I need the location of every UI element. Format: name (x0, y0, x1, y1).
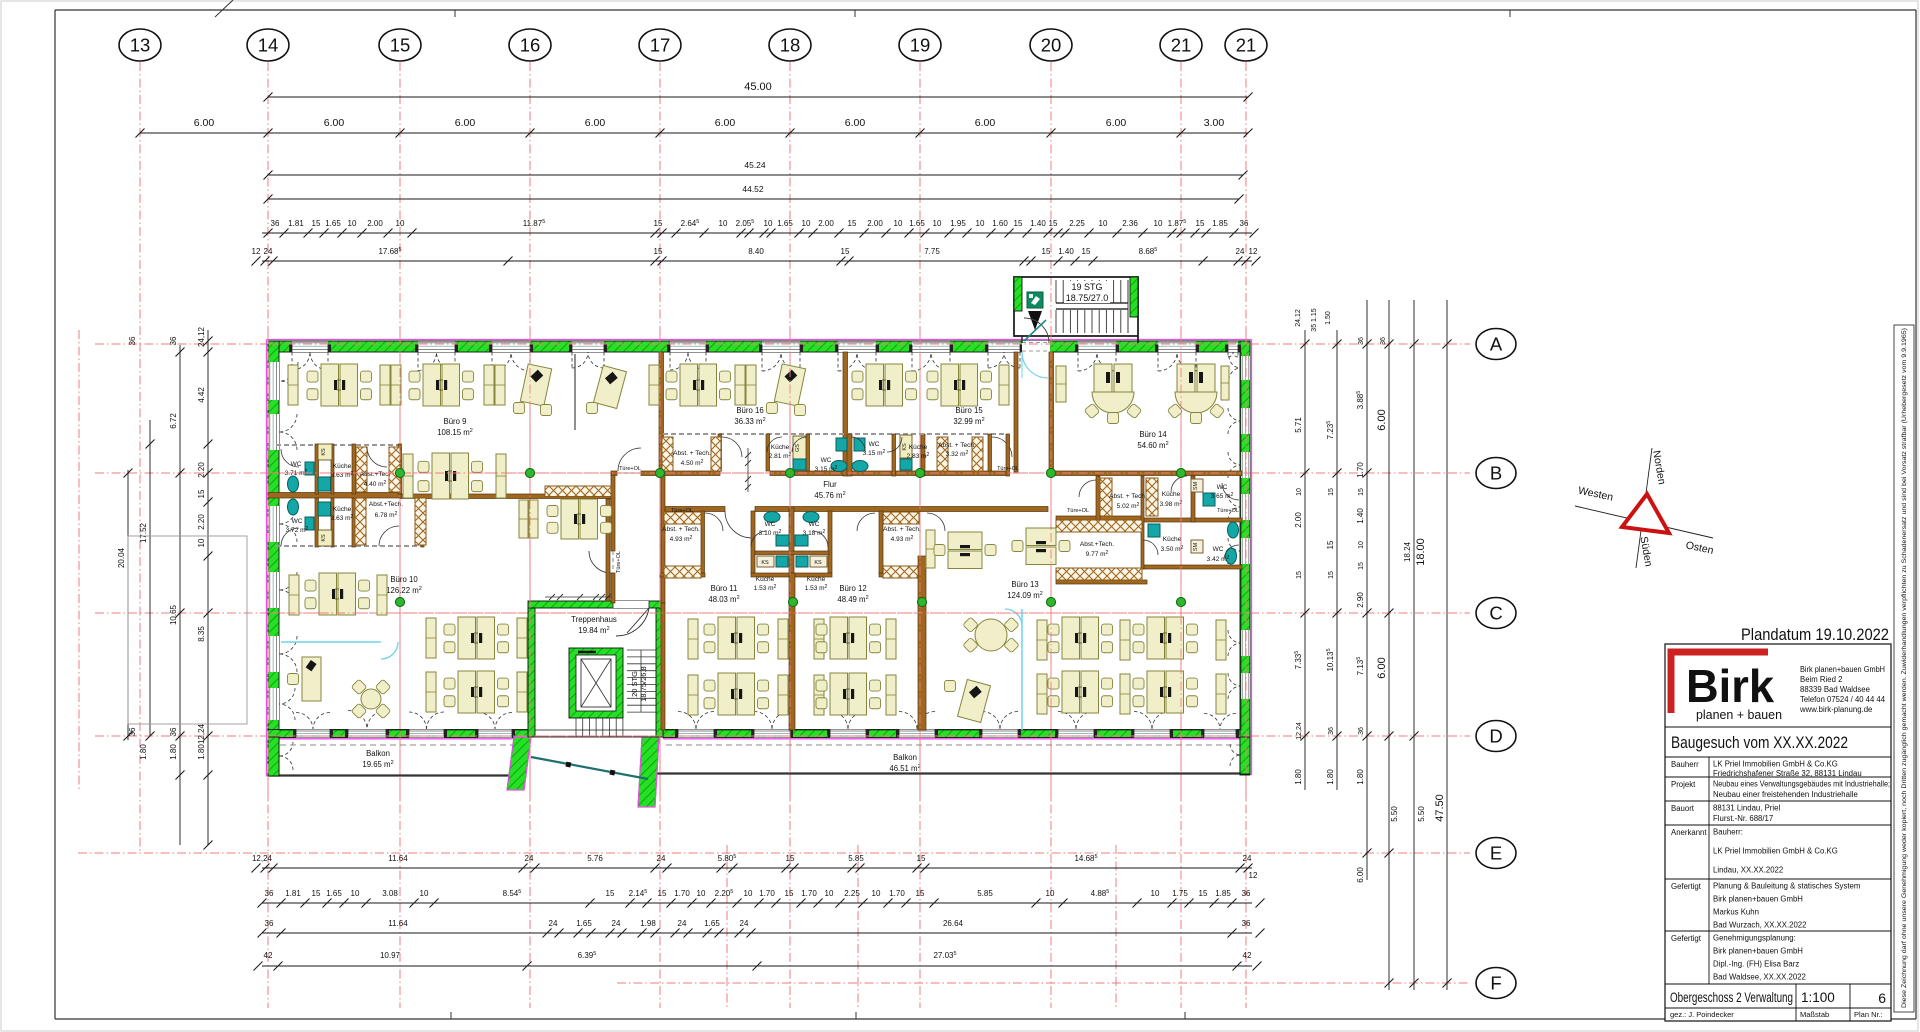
svg-text:KS: KS (761, 560, 769, 566)
svg-text:Neubau eines Verwaltungsgebäud: Neubau eines Verwaltungsgebäudes mit Ind… (1713, 780, 1890, 789)
svg-text:10: 10 (894, 219, 903, 228)
svg-text:15: 15 (1042, 247, 1051, 256)
svg-text:5.85: 5.85 (977, 889, 993, 898)
svg-text:26.64: 26.64 (943, 919, 964, 928)
svg-text:20: 20 (1041, 35, 1062, 56)
svg-text:5.71: 5.71 (1294, 417, 1303, 433)
svg-text:15: 15 (658, 889, 667, 898)
svg-text:10: 10 (420, 889, 429, 898)
svg-text:Planung & Bauleitung & statisc: Planung & Bauleitung & statisches System (1713, 882, 1860, 891)
svg-text:3.18 m2: 3.18 m2 (803, 529, 826, 537)
svg-text:3.50 m2: 3.50 m2 (1161, 545, 1184, 553)
svg-text:gez.: J. Poindecker: gez.: J. Poindecker (1670, 1010, 1734, 1019)
svg-text:3.00: 3.00 (1204, 117, 1225, 129)
svg-text:E: E (1490, 843, 1502, 864)
svg-text:Maßstab: Maßstab (1800, 1010, 1829, 1019)
svg-text:planen + bauen: planen + bauen (1696, 708, 1782, 722)
svg-text:Abst. + Tech.: Abst. + Tech. (673, 450, 711, 457)
svg-text:6.78 m2: 6.78 m2 (375, 511, 398, 519)
svg-text:18.75/26.8: 18.75/26.8 (639, 666, 648, 701)
svg-text:20.04: 20.04 (117, 547, 126, 568)
svg-text:15: 15 (654, 247, 663, 256)
svg-text:Büro 12: Büro 12 (839, 584, 866, 593)
svg-text:LK Priel Immobilien GmbH & Co.: LK Priel Immobilien GmbH & Co.KG (1713, 760, 1838, 769)
svg-text:48.03 m2: 48.03 m2 (708, 595, 739, 604)
svg-text:16: 16 (520, 35, 541, 56)
svg-text:1.80: 1.80 (1326, 769, 1335, 785)
svg-text:88339 Bad Waldsee: 88339 Bad Waldsee (1800, 685, 1870, 694)
svg-text:1.53 m2: 1.53 m2 (805, 584, 828, 592)
svg-text:45.00: 45.00 (744, 81, 772, 93)
svg-text:Abst.+Tech.: Abst.+Tech. (369, 501, 403, 508)
svg-text:1.70: 1.70 (801, 889, 817, 898)
svg-text:Dipl.-Ing. (FH) Elisa Barz: Dipl.-Ing. (FH) Elisa Barz (1713, 960, 1799, 969)
svg-text:14: 14 (258, 35, 279, 56)
svg-text:WC: WC (292, 518, 303, 525)
svg-text:Bauherr: Bauherr (1671, 760, 1699, 769)
svg-text:Friedrichshafener Straße 32, 8: Friedrichshafener Straße 32, 88131 Linda… (1713, 769, 1862, 778)
svg-text:1.85: 1.85 (1215, 889, 1231, 898)
svg-text:Küche: Küche (1162, 491, 1181, 498)
svg-text:17: 17 (650, 35, 671, 56)
svg-text:4.40 m2: 4.40 m2 (364, 480, 387, 488)
svg-text:B: B (1490, 463, 1502, 484)
svg-text:10.135: 10.135 (1326, 648, 1335, 671)
svg-text:Birk planen+bauen GmbH: Birk planen+bauen GmbH (1800, 665, 1885, 674)
svg-text:2.20: 2.20 (197, 462, 206, 478)
svg-text:24: 24 (678, 919, 687, 928)
svg-text:Küche: Küche (756, 576, 775, 583)
svg-text:Birk planen+bauen GmbH: Birk planen+bauen GmbH (1713, 895, 1803, 904)
svg-text:8.35: 8.35 (197, 626, 206, 642)
svg-text:10.65: 10.65 (169, 604, 178, 625)
svg-text:35 1.15: 35 1.15 (1311, 308, 1318, 331)
svg-text:Büro 11: Büro 11 (711, 584, 738, 593)
svg-text:Bad Wurzach, XX.XX.2022: Bad Wurzach, XX.XX.2022 (1713, 921, 1806, 930)
svg-text:Büro 13: Büro 13 (1011, 580, 1038, 589)
svg-text:10: 10 (197, 538, 206, 547)
svg-text:F: F (1490, 973, 1501, 994)
svg-text:10: 10 (976, 219, 985, 228)
svg-text:Abst. + Tech.: Abst. + Tech. (883, 526, 921, 533)
svg-text:1.95: 1.95 (950, 219, 966, 228)
svg-text:1.53 m2: 1.53 m2 (754, 584, 777, 592)
svg-text:15: 15 (916, 889, 925, 898)
svg-text:SM: SM (1193, 542, 1199, 551)
svg-text:Küche: Küche (807, 576, 826, 583)
svg-text:10: 10 (719, 219, 728, 228)
svg-text:1.50: 1.50 (1325, 311, 1332, 325)
svg-text:36: 36 (1328, 727, 1335, 735)
svg-text:12,24: 12,24 (197, 723, 206, 744)
svg-text:GS: GS (795, 444, 801, 452)
svg-text:6.00: 6.00 (585, 117, 606, 129)
svg-text:11.875: 11.875 (523, 219, 546, 228)
svg-text:1.65: 1.65 (704, 919, 720, 928)
svg-text:15: 15 (1296, 571, 1303, 579)
svg-text:Balkon: Balkon (366, 749, 390, 758)
svg-text:Projekt: Projekt (1671, 780, 1696, 789)
svg-text:19.84 m2: 19.84 m2 (578, 626, 609, 635)
svg-text:Büro 15: Büro 15 (955, 406, 983, 415)
svg-text:WC: WC (869, 441, 880, 448)
svg-text:1.40: 1.40 (1030, 219, 1046, 228)
svg-text:15: 15 (654, 219, 663, 228)
svg-text:Türe+OL: Türe+OL (1067, 508, 1089, 514)
svg-text:126.22 m2: 126.22 m2 (386, 586, 422, 595)
svg-text:9.77 m2: 9.77 m2 (1086, 550, 1109, 558)
svg-text:Flur: Flur (823, 480, 837, 489)
svg-text:1.80: 1.80 (139, 744, 148, 760)
svg-text:4.42: 4.42 (197, 387, 206, 403)
svg-text:KS: KS (321, 448, 327, 456)
svg-text:42: 42 (264, 951, 273, 960)
svg-text:Büro 14: Büro 14 (1139, 430, 1167, 439)
svg-text:Abst. + Tech.: Abst. + Tech. (662, 526, 700, 533)
svg-text:Abst.+Tech.: Abst.+Tech. (1080, 541, 1114, 548)
svg-text:15: 15 (1358, 562, 1365, 570)
svg-text:1.81: 1.81 (288, 219, 304, 228)
svg-text:11.64: 11.64 (388, 854, 408, 863)
svg-text:KS: KS (321, 534, 327, 542)
svg-text:15: 15 (1049, 219, 1058, 228)
svg-text:1.85: 1.85 (1212, 219, 1228, 228)
svg-text:Plan Nr.:: Plan Nr.: (1854, 1010, 1883, 1019)
svg-text:10: 10 (348, 219, 357, 228)
svg-text:54.60 m2: 54.60 m2 (1137, 441, 1168, 450)
svg-text:24: 24 (1243, 854, 1252, 863)
svg-text:Anerkannt: Anerkannt (1671, 828, 1707, 837)
svg-text:3.32 m2: 3.32 m2 (946, 450, 969, 458)
svg-text:6.00: 6.00 (455, 117, 476, 129)
svg-text:36: 36 (169, 336, 178, 345)
svg-text:2.90: 2.90 (1356, 592, 1365, 608)
svg-text:1.40: 1.40 (1058, 247, 1074, 256)
svg-text:Birk planen+bauen GmbH: Birk planen+bauen GmbH (1713, 947, 1803, 956)
svg-text:www.birk-planung.de: www.birk-planung.de (1799, 705, 1872, 714)
svg-text:Neubau einer freistehenden Ind: Neubau einer freistehenden Industriehall… (1713, 790, 1858, 799)
svg-text:Abst. + Tech.: Abst. + Tech. (938, 442, 976, 449)
svg-text:15: 15 (390, 35, 411, 56)
svg-text:LK Priel Immobilien GmbH & Co.: LK Priel Immobilien GmbH & Co.KG (1713, 847, 1838, 856)
svg-text:6.00: 6.00 (1356, 867, 1365, 883)
svg-text:4.50 m2: 4.50 m2 (681, 459, 704, 467)
svg-text:10: 10 (1099, 219, 1108, 228)
svg-text:36: 36 (1242, 919, 1251, 928)
svg-text:Küche: Küche (1163, 536, 1182, 543)
svg-text:WC: WC (765, 521, 776, 528)
svg-text:3.63 m2: 3.63 m2 (331, 471, 354, 479)
svg-text:10: 10 (802, 219, 811, 228)
svg-text:10: 10 (933, 219, 942, 228)
svg-text:10: 10 (1296, 488, 1303, 496)
svg-text:C: C (1489, 603, 1502, 624)
svg-text:Markus Kuhn: Markus Kuhn (1713, 908, 1759, 917)
svg-text:5.02 m2: 5.02 m2 (1117, 502, 1140, 510)
svg-text:10: 10 (396, 219, 405, 228)
svg-text:3.63 m2: 3.63 m2 (331, 514, 354, 522)
svg-text:17.685: 17.685 (378, 247, 401, 256)
svg-text:44.52: 44.52 (742, 184, 764, 194)
svg-text:KS: KS (814, 560, 822, 566)
svg-text:6.72: 6.72 (169, 413, 178, 429)
svg-text:10: 10 (1046, 889, 1055, 898)
svg-text:Diese Zeichnung darf ohne unse: Diese Zeichnung darf ohne unsere Genehmi… (1901, 328, 1908, 1008)
svg-text:7.75: 7.75 (924, 247, 940, 256)
svg-text:Türe+OL: Türe+OL (671, 508, 693, 514)
svg-text:15: 15 (312, 889, 321, 898)
svg-text:2.36: 2.36 (1122, 219, 1138, 228)
svg-text:Baugesuch vom XX.XX.2022: Baugesuch vom XX.XX.2022 (1671, 734, 1848, 752)
svg-text:36: 36 (1380, 337, 1387, 345)
svg-text:1.80: 1.80 (1356, 769, 1365, 785)
svg-text:24: 24 (549, 919, 558, 928)
svg-text:19.65 m2: 19.65 m2 (362, 760, 393, 769)
svg-text:36.33 m2: 36.33 m2 (734, 417, 765, 426)
svg-text:36: 36 (265, 919, 274, 928)
svg-text:24,12: 24,12 (1295, 309, 1302, 327)
svg-text:10: 10 (351, 889, 360, 898)
svg-text:45.24: 45.24 (744, 160, 766, 170)
svg-text:6.00: 6.00 (1376, 657, 1388, 678)
svg-text:1.65: 1.65 (576, 919, 592, 928)
svg-text:36: 36 (169, 727, 178, 736)
svg-text:3.08: 3.08 (382, 889, 398, 898)
svg-text:6.00: 6.00 (194, 117, 215, 129)
svg-text:5.85: 5.85 (848, 854, 864, 863)
svg-text:15: 15 (1328, 571, 1335, 579)
svg-text:Büro 16: Büro 16 (736, 406, 763, 415)
svg-text:24: 24 (657, 854, 666, 863)
svg-text:36: 36 (265, 889, 274, 898)
svg-text:Türe+OL: Türe+OL (619, 466, 641, 472)
svg-text:21: 21 (1236, 35, 1257, 56)
svg-text:2.81 m2: 2.81 m2 (769, 452, 792, 460)
svg-text:36: 36 (128, 336, 137, 345)
svg-text:3.65 m2: 3.65 m2 (1211, 492, 1234, 500)
svg-text:2.20: 2.20 (197, 514, 206, 530)
svg-text:24: 24 (264, 247, 273, 256)
svg-text:Balkon: Balkon (893, 753, 917, 762)
svg-text:2.00: 2.00 (867, 219, 883, 228)
svg-text:1.40: 1.40 (1356, 508, 1365, 524)
svg-text:46.51 m2: 46.51 m2 (889, 764, 920, 773)
svg-text:5.50: 5.50 (1390, 806, 1399, 822)
svg-text:1.70: 1.70 (1356, 462, 1365, 478)
svg-text:6.00: 6.00 (845, 117, 866, 129)
svg-text:8.40: 8.40 (748, 247, 764, 256)
svg-text:Treppenhaus: Treppenhaus (571, 615, 617, 624)
svg-text:6.00: 6.00 (324, 117, 345, 129)
svg-text:WC: WC (821, 457, 832, 464)
svg-text:6: 6 (1878, 990, 1886, 1006)
svg-text:15: 15 (841, 247, 850, 256)
svg-text:KS: KS (902, 443, 908, 451)
svg-text:45.76 m2: 45.76 m2 (814, 491, 845, 500)
svg-text:Birk: Birk (1686, 660, 1774, 712)
svg-text:Genehmigungsplanung:: Genehmigungsplanung: (1713, 934, 1796, 943)
svg-text:Küche: Küche (771, 444, 790, 451)
svg-text:48.49 m2: 48.49 m2 (837, 595, 868, 604)
svg-text:47.50: 47.50 (1434, 794, 1446, 822)
svg-text:15: 15 (917, 854, 926, 863)
svg-text:10: 10 (764, 219, 773, 228)
svg-text:10: 10 (1151, 889, 1160, 898)
svg-text:15: 15 (786, 854, 795, 863)
svg-text:1.65: 1.65 (909, 219, 925, 228)
svg-text:19 STG: 19 STG (1071, 282, 1102, 292)
svg-text:4.93 m2: 4.93 m2 (891, 535, 914, 543)
svg-text:1.80: 1.80 (169, 744, 178, 760)
svg-text:12: 12 (252, 247, 261, 256)
svg-text:10: 10 (744, 889, 753, 898)
svg-text:11.64: 11.64 (388, 919, 408, 928)
svg-text:5.50: 5.50 (1417, 806, 1426, 822)
svg-text:15: 15 (1358, 488, 1365, 496)
svg-text:Küche: Küche (909, 444, 928, 451)
svg-text:12: 12 (1249, 871, 1258, 880)
svg-text:Bauherr:: Bauherr: (1713, 828, 1743, 837)
svg-text:3.15 m2: 3.15 m2 (863, 449, 886, 457)
svg-text:Gefertigt: Gefertigt (1671, 934, 1702, 943)
svg-text:18: 18 (780, 35, 801, 56)
svg-text:6.00: 6.00 (975, 117, 996, 129)
svg-text:3.72 m2: 3.72 m2 (286, 526, 309, 534)
svg-text:36: 36 (1240, 219, 1249, 228)
svg-text:1.65: 1.65 (325, 219, 341, 228)
svg-text:4.93 m2: 4.93 m2 (670, 535, 693, 543)
svg-text:36: 36 (1358, 727, 1365, 735)
svg-text:Bad Waldsee, XX.XX.2022: Bad Waldsee, XX.XX.2022 (1713, 973, 1806, 982)
svg-text:1.70: 1.70 (889, 889, 905, 898)
svg-text:15: 15 (1014, 219, 1023, 228)
svg-text:Türe+OL: Türe+OL (616, 551, 622, 573)
svg-text:1.80: 1.80 (197, 744, 206, 760)
svg-text:42: 42 (1243, 951, 1252, 960)
svg-text:15: 15 (1328, 488, 1335, 496)
svg-text:24: 24 (740, 919, 749, 928)
svg-text:14.685: 14.685 (1074, 854, 1097, 863)
svg-text:1.81: 1.81 (285, 889, 301, 898)
svg-text:1:100: 1:100 (1801, 990, 1835, 1005)
svg-text:1.70: 1.70 (674, 889, 690, 898)
svg-text:10: 10 (697, 889, 706, 898)
svg-text:Türe+OL: Türe+OL (997, 466, 1019, 472)
svg-text:15: 15 (785, 889, 794, 898)
svg-text:2.25: 2.25 (1069, 219, 1085, 228)
svg-text:6.00: 6.00 (715, 117, 736, 129)
svg-text:Küche: Küche (333, 463, 352, 470)
svg-text:6.00: 6.00 (1376, 409, 1388, 430)
svg-text:15: 15 (312, 219, 321, 228)
svg-text:2.25: 2.25 (844, 889, 860, 898)
svg-text:WC: WC (809, 521, 820, 528)
svg-text:15: 15 (606, 889, 615, 898)
svg-text:SM: SM (1193, 481, 1199, 490)
svg-text:15: 15 (1326, 540, 1335, 549)
svg-text:10: 10 (872, 889, 881, 898)
svg-text:18.00: 18.00 (1415, 538, 1427, 566)
svg-text:1.80: 1.80 (1294, 769, 1303, 785)
svg-text:124.09 m2: 124.09 m2 (1007, 591, 1043, 600)
svg-text:1.98: 1.98 (640, 919, 656, 928)
svg-text:2.00: 2.00 (367, 219, 383, 228)
svg-text:10: 10 (825, 889, 834, 898)
svg-text:12: 12 (1249, 247, 1258, 256)
svg-text:15: 15 (197, 489, 206, 498)
svg-text:A: A (1490, 334, 1503, 355)
svg-text:19: 19 (910, 35, 931, 56)
svg-text:32.99 m2: 32.99 m2 (953, 417, 984, 426)
svg-text:D: D (1489, 726, 1502, 747)
svg-text:Lindau, XX.XX.2022: Lindau, XX.XX.2022 (1713, 866, 1783, 875)
svg-text:24: 24 (612, 919, 621, 928)
svg-text:15: 15 (1082, 247, 1091, 256)
svg-text:Gefertigt: Gefertigt (1671, 882, 1702, 891)
svg-text:6.00: 6.00 (1106, 117, 1127, 129)
svg-text:Flurst.-Nr. 688/17: Flurst.-Nr. 688/17 (1713, 814, 1773, 823)
svg-text:Abst. + Tech.: Abst. + Tech. (1109, 493, 1147, 500)
svg-text:Beim Ried 2: Beim Ried 2 (1800, 675, 1842, 684)
svg-text:WC: WC (1213, 546, 1224, 553)
svg-text:88131 Lindau, Priel: 88131 Lindau, Priel (1713, 804, 1780, 813)
svg-text:36: 36 (1242, 889, 1251, 898)
svg-text:21: 21 (1171, 35, 1192, 56)
svg-text:Obergeschoss 2 Verwaltung: Obergeschoss 2 Verwaltung (1670, 990, 1793, 1005)
svg-text:3.42 m2: 3.42 m2 (1207, 555, 1230, 563)
svg-text:5.76: 5.76 (587, 854, 603, 863)
svg-text:Türe+OL: Türe+OL (1217, 508, 1239, 514)
svg-text:3.10 m2: 3.10 m2 (759, 529, 782, 537)
svg-text:13: 13 (130, 35, 151, 56)
svg-text:36: 36 (271, 219, 280, 228)
svg-text:10: 10 (1358, 541, 1365, 549)
svg-text:1.65: 1.65 (777, 219, 793, 228)
svg-text:1.65: 1.65 (326, 889, 342, 898)
svg-text:1.70: 1.70 (759, 889, 775, 898)
svg-text:Bauort: Bauort (1671, 804, 1695, 813)
svg-text:Abst.+Tec.: Abst.+Tec. (360, 471, 391, 478)
svg-text:2.00: 2.00 (1294, 512, 1303, 528)
svg-text:2.00: 2.00 (818, 219, 834, 228)
svg-text:12,24: 12,24 (1296, 722, 1303, 740)
svg-text:3.15 m2: 3.15 m2 (815, 465, 838, 473)
svg-text:2.83 m2: 2.83 m2 (907, 452, 930, 460)
svg-text:27.035: 27.035 (933, 951, 956, 960)
svg-text:Telefon 07524 / 40 44 44: Telefon 07524 / 40 44 44 (1800, 695, 1886, 704)
svg-text:10.97: 10.97 (380, 951, 401, 960)
svg-text:15: 15 (848, 219, 857, 228)
svg-text:15: 15 (1199, 889, 1208, 898)
svg-text:108.15 m2: 108.15 m2 (437, 428, 473, 437)
svg-text:3.98 m2: 3.98 m2 (1160, 500, 1183, 508)
svg-text:Plandatum 19.10.2022: Plandatum 19.10.2022 (1741, 626, 1889, 644)
svg-text:10: 10 (1154, 219, 1163, 228)
svg-text:18.75/27.0: 18.75/27.0 (1066, 293, 1109, 303)
svg-text:24: 24 (1236, 247, 1245, 256)
svg-text:Büro 10: Büro 10 (390, 575, 418, 584)
svg-text:12,24: 12,24 (252, 854, 273, 863)
svg-text:15: 15 (1196, 219, 1205, 228)
svg-text:20 STG: 20 STG (630, 671, 639, 697)
svg-text:Büro 9: Büro 9 (444, 417, 467, 426)
svg-text:Küche: Küche (333, 506, 352, 513)
svg-text:24: 24 (525, 854, 534, 863)
svg-text:18.24: 18.24 (1403, 541, 1412, 562)
svg-text:17.52: 17.52 (139, 522, 148, 543)
svg-text:36: 36 (1358, 337, 1365, 345)
svg-text:1.75: 1.75 (1172, 889, 1188, 898)
